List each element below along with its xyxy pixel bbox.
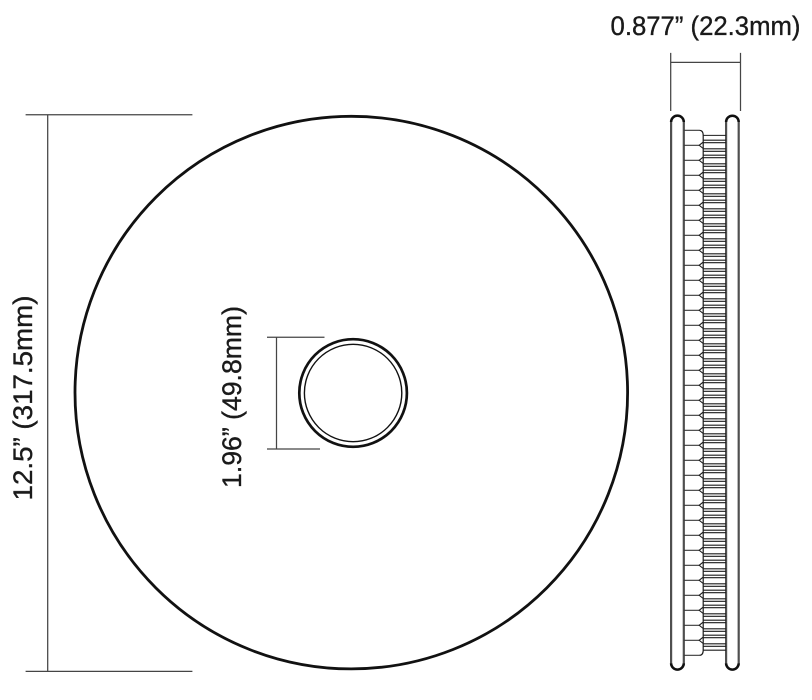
svg-text:0.877” (22.3mm): 0.877” (22.3mm) [611, 11, 801, 41]
svg-text:1.96” (49.8mm): 1.96” (49.8mm) [217, 306, 247, 488]
svg-text:12.5” (317.5mm): 12.5” (317.5mm) [7, 296, 37, 501]
